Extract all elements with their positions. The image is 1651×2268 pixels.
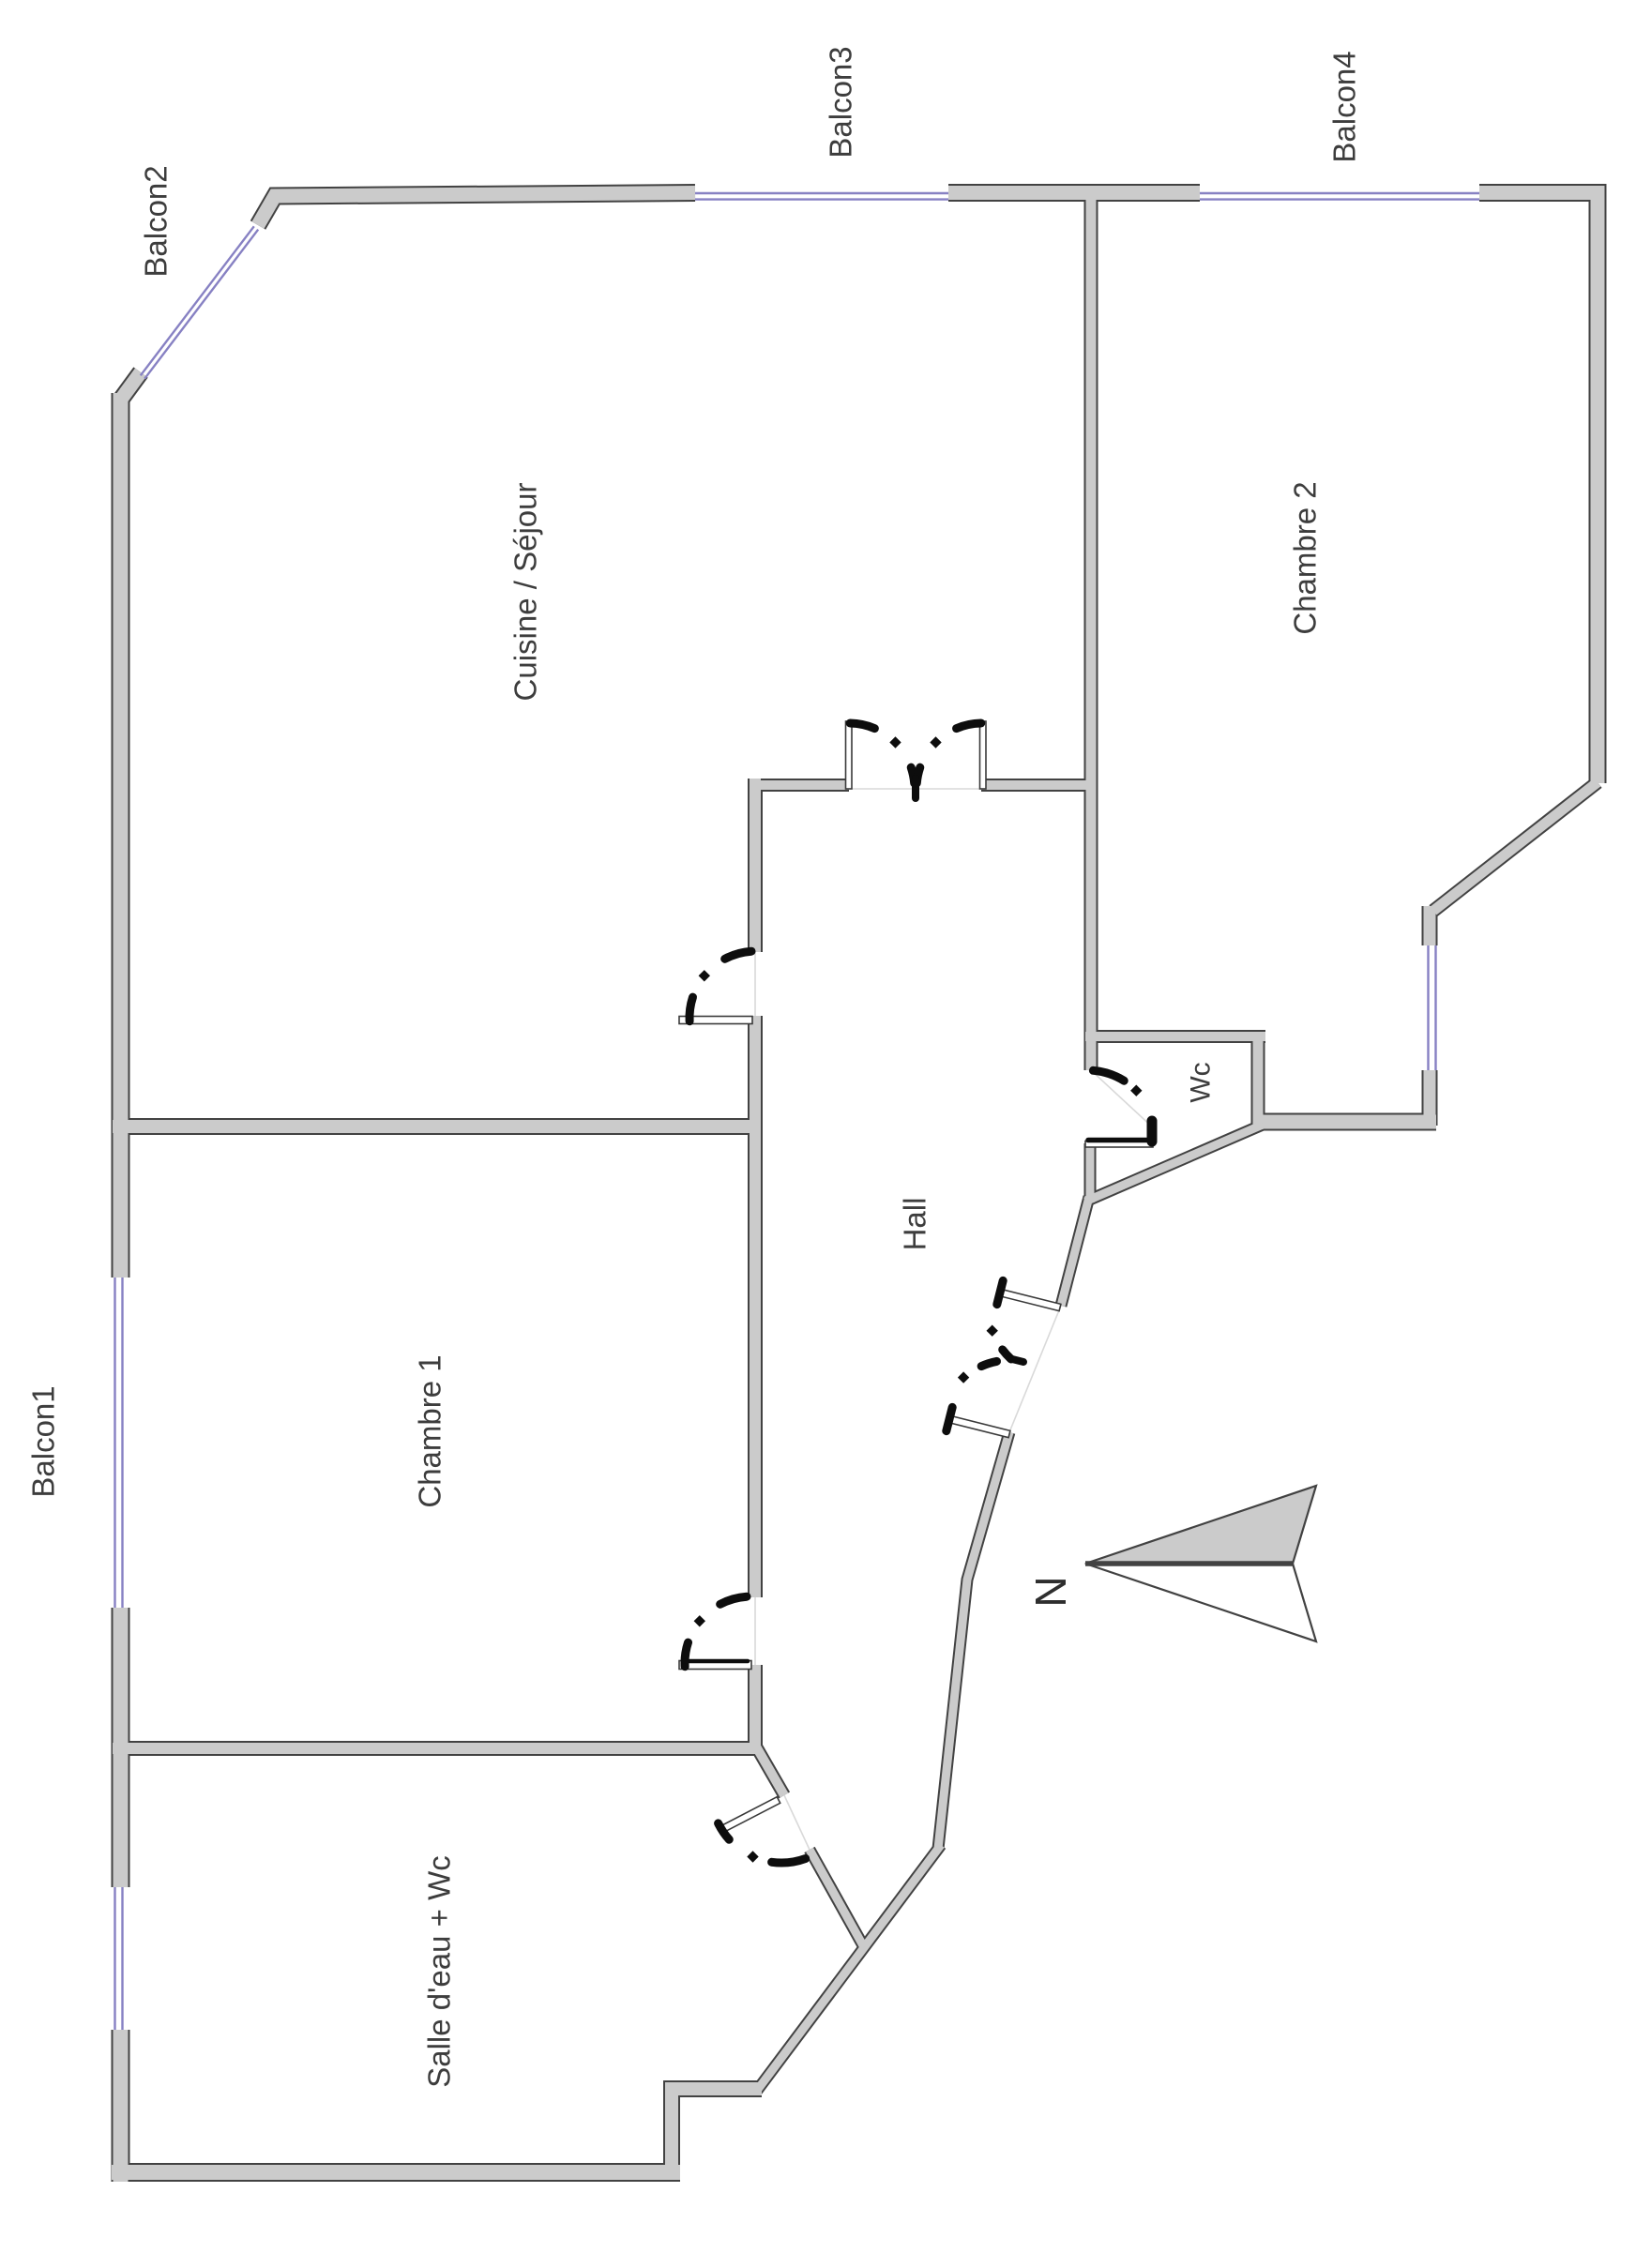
svg-text:Balcon2: Balcon2	[139, 165, 174, 277]
svg-text:Balcon1: Balcon1	[26, 1385, 61, 1497]
svg-text:Hall: Hall	[898, 1198, 932, 1251]
svg-text:Salle d'eau + Wc: Salle d'eau + Wc	[422, 1855, 457, 2088]
svg-text:Balcon4: Balcon4	[1327, 51, 1362, 162]
svg-text:Balcon3: Balcon3	[824, 46, 858, 158]
svg-text:Chambre 1: Chambre 1	[413, 1354, 447, 1507]
svg-text:Cuisine / Séjour: Cuisine / Séjour	[508, 483, 543, 702]
svg-text:N: N	[1026, 1576, 1075, 1607]
svg-text:Chambre 2: Chambre 2	[1288, 481, 1323, 634]
svg-text:Wc: Wc	[1186, 1062, 1217, 1102]
